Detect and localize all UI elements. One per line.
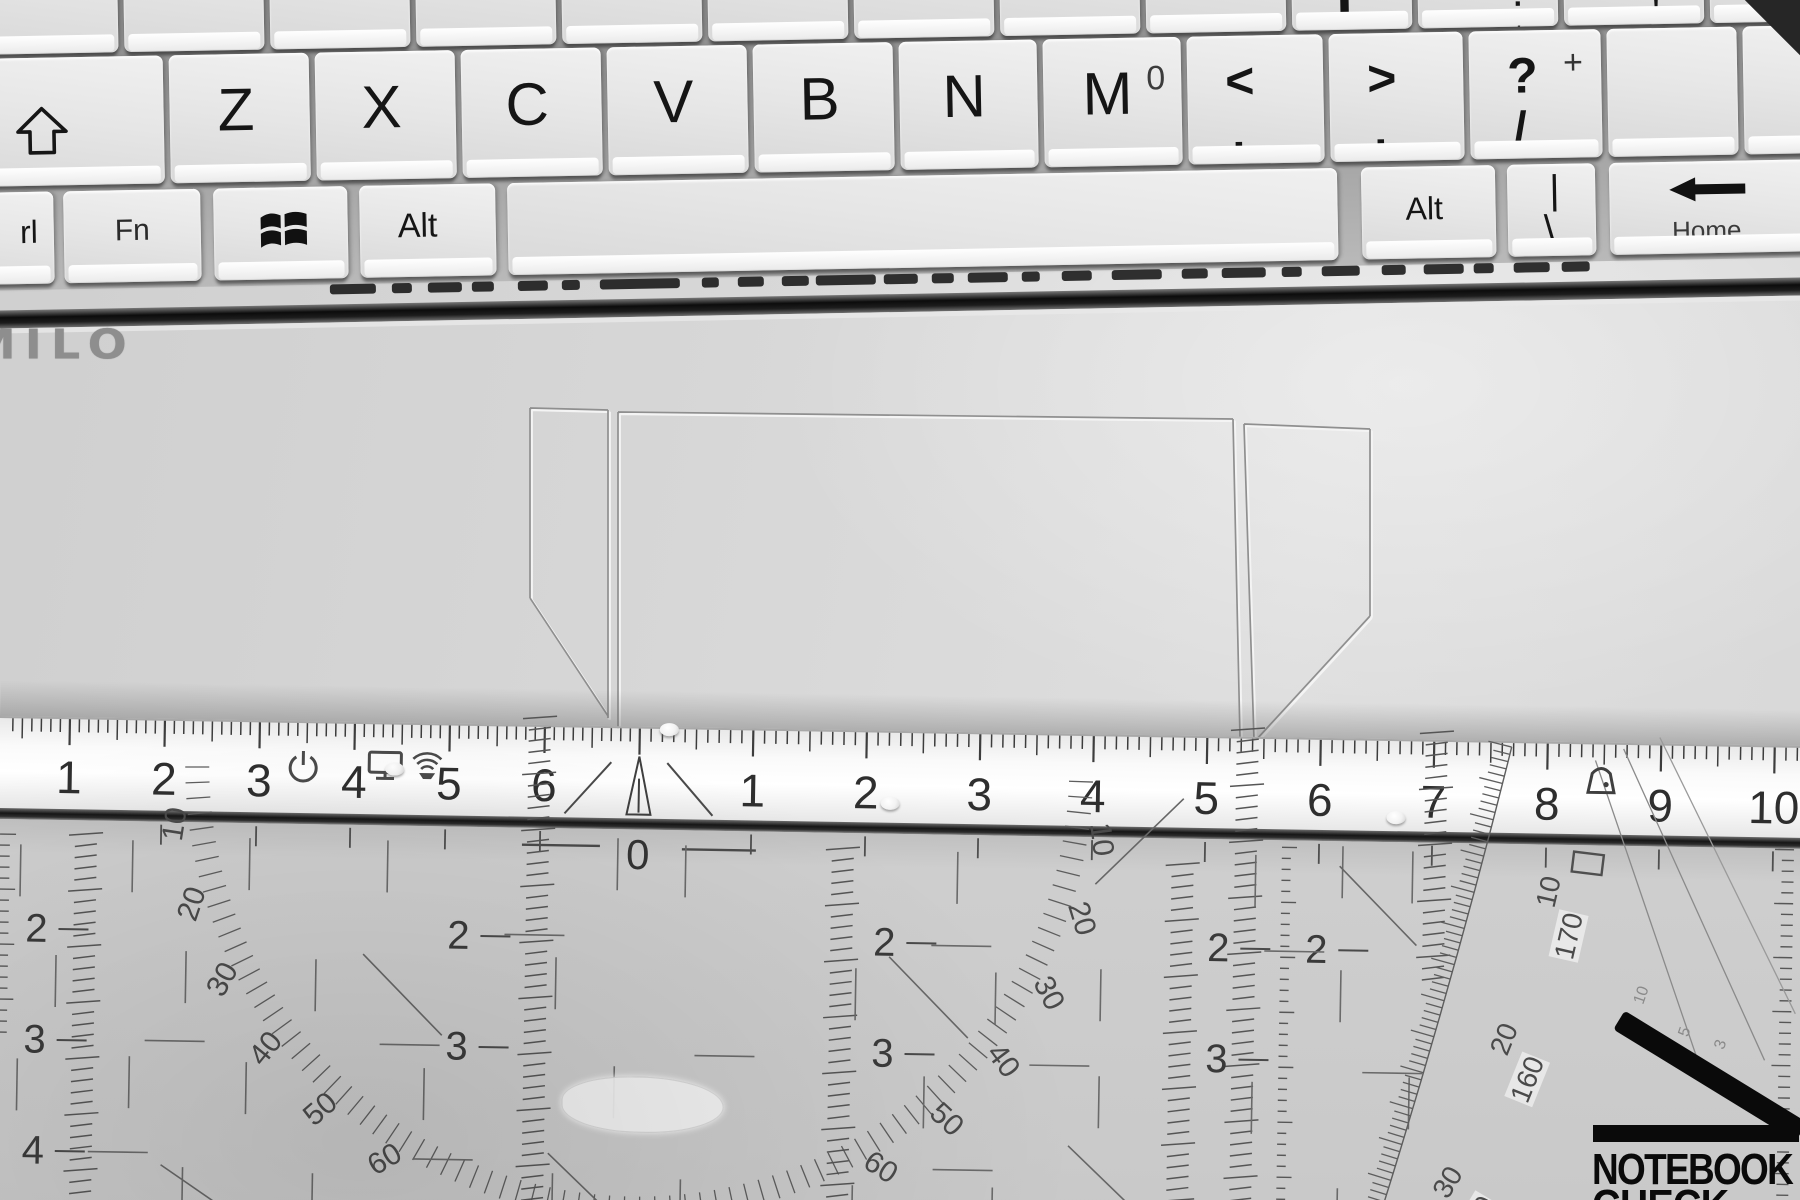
ladder-tick — [828, 1093, 850, 1096]
protractor-arc-tick — [1043, 913, 1066, 921]
ladder-tick — [524, 1029, 546, 1032]
ladder-tick — [75, 855, 97, 858]
grid-dash-vertical — [923, 1076, 924, 1128]
protractor-degree-west: 10 — [156, 805, 194, 843]
ladder-tick — [831, 880, 853, 883]
ladder-tick — [1224, 1175, 1258, 1179]
card-slot-icon — [1570, 850, 1608, 879]
ladder-tick — [1166, 862, 1200, 866]
ruler-number-left: 3 — [246, 754, 272, 806]
ladder-tick — [1167, 1154, 1189, 1157]
ladder-tick — [520, 884, 554, 888]
right-protractor-tick — [1469, 845, 1486, 849]
ladder-tick — [525, 985, 547, 988]
right-protractor-tick — [1411, 1054, 1427, 1059]
protractor-arc-tick — [360, 1105, 375, 1124]
ladder-tick — [522, 1141, 544, 1144]
ladder-tick — [527, 850, 549, 853]
grid-dash-horizontal — [1264, 951, 1324, 952]
protractor-arc-tick — [904, 1105, 919, 1124]
protractor-arc-tick — [292, 1043, 310, 1059]
right-protractor-tick — [1430, 989, 1447, 994]
ruler: 6543211234567891001020304050601020304050… — [0, 716, 1800, 1200]
ladder-tick — [524, 1007, 546, 1010]
right-protractor-tick — [1399, 1097, 1415, 1102]
right-protractor-tick — [1420, 1025, 1436, 1030]
ladder-tick — [1164, 974, 1198, 978]
ladder-tick — [1233, 963, 1255, 966]
ladder-tick — [525, 951, 547, 954]
watermark-horizontal-bar — [1593, 1125, 1799, 1142]
grid-dash-vertical — [16, 1058, 17, 1110]
ladder-tick — [1234, 884, 1256, 887]
protractor-degree-east: 20 — [1061, 898, 1102, 940]
ladder-tick — [1233, 940, 1255, 943]
right-protractor-tick — [1482, 794, 1499, 798]
protractor-arc-tick — [996, 1007, 1016, 1020]
ladder-tick — [516, 1164, 550, 1168]
ladder-tick — [70, 1157, 92, 1160]
protractor-arc-tick — [654, 1196, 656, 1200]
vertical-scale-number: 2 — [1305, 928, 1328, 972]
ladder-tick — [1235, 851, 1257, 854]
right-protractor-tick — [1465, 859, 1482, 863]
right-protractor-tick — [1460, 881, 1477, 885]
ladder-tick — [1229, 839, 1263, 843]
ruler-number-right: 10 — [1748, 781, 1800, 834]
protractor-degree-east: 50 — [923, 1096, 970, 1143]
grid-dash-vertical — [132, 840, 133, 892]
right-protractor-tick — [1392, 1118, 1408, 1123]
ladder-tick — [1237, 739, 1259, 742]
protractor-arc-tick — [772, 1175, 780, 1198]
ladder-tick — [70, 1135, 92, 1138]
protractor-degree-east: 60 — [858, 1145, 904, 1191]
ladder-tick — [73, 978, 95, 981]
ladder-tick — [1424, 831, 1446, 834]
ladder-tick — [1230, 783, 1264, 787]
ladder-tick — [827, 1138, 849, 1141]
ladder-tick — [528, 749, 550, 752]
ruler-molding-bump — [385, 762, 404, 775]
grid-dash-horizontal — [504, 934, 564, 935]
grid-diagonal — [1067, 1146, 1148, 1200]
ladder-tick — [1424, 854, 1446, 857]
ladder-tick — [830, 981, 852, 984]
protractor-degree-east: 10 — [1083, 821, 1120, 858]
grid-dash-vertical — [991, 1188, 992, 1200]
protractor-arc-tick — [949, 1065, 967, 1082]
right-protractor-tick — [1426, 1003, 1442, 1008]
ladder-tick — [1422, 977, 1444, 980]
right-protractor-tick — [1372, 1182, 1388, 1187]
ladder-tick — [826, 1194, 848, 1197]
protractor-arc-tick — [978, 1031, 997, 1046]
protractor-arc-tick — [938, 1076, 955, 1093]
grid-dash-vertical — [1412, 851, 1413, 903]
ladder-tick — [1235, 828, 1257, 831]
ladder-tick — [1170, 986, 1192, 989]
ladder-tick — [1417, 899, 1451, 903]
ladder-tick — [64, 1112, 98, 1116]
ladder-tick — [1236, 806, 1258, 809]
ladder-tick — [1233, 974, 1255, 977]
ladder-tick — [74, 922, 96, 925]
protractor-arc-tick — [199, 871, 222, 878]
ladder-tick — [1226, 1007, 1260, 1011]
ladder-tick — [521, 1175, 543, 1178]
protractor-arc-tick — [854, 1139, 867, 1160]
grid-dash-vertical — [855, 968, 856, 1020]
wifi-arc — [413, 753, 441, 759]
protractor-arc-tick — [1069, 781, 1093, 782]
right-protractor-tick — [1436, 967, 1453, 972]
ladder-tick — [529, 727, 551, 730]
grid-dash-vertical — [245, 1062, 246, 1114]
right-protractor-tick — [1470, 814, 1493, 820]
ladder-tick — [524, 1018, 546, 1021]
protractor-arc-tick — [399, 1131, 412, 1152]
protractor-arc-tick — [530, 1184, 536, 1200]
ruler-molding-bump — [881, 797, 900, 810]
ladder-tick — [1426, 753, 1448, 756]
ladder-tick — [1167, 1120, 1189, 1123]
protractor-arc-tick — [758, 1180, 765, 1200]
ruler-number-right: 4 — [1080, 770, 1106, 822]
ladder-tick — [829, 1037, 851, 1040]
protractor-arc-tick — [195, 856, 218, 862]
ladder-tick — [523, 716, 557, 720]
right-protractor-tick — [1488, 741, 1511, 747]
right-protractor-degree-inner: 170 — [1548, 910, 1589, 962]
protractor-arc-tick — [263, 1007, 283, 1021]
grid-dash-vertical — [851, 1185, 852, 1200]
ladder-tick — [527, 839, 549, 842]
protractor-arc-tick — [608, 1196, 610, 1200]
ladder-tick — [526, 917, 548, 920]
grid-dash-vertical — [680, 1179, 681, 1200]
protractor-arc-tick — [800, 1165, 810, 1187]
ladder-tick — [517, 1108, 551, 1112]
ladder-tick — [1225, 1063, 1259, 1067]
ladder-tick — [523, 1097, 545, 1100]
protractor-arc-tick — [225, 941, 247, 952]
ladder-tick — [830, 936, 852, 939]
right-protractor-tick — [1431, 958, 1454, 964]
vertical-scale-number: 2 — [873, 921, 896, 965]
protractor-arc-tick — [484, 1171, 492, 1194]
protractor-arc-tick — [254, 994, 274, 1007]
ladder-tick — [1237, 750, 1259, 753]
touchpad-right-button-highlight — [1246, 426, 1372, 742]
protractor-arc-tick — [413, 1139, 425, 1160]
right-protractor-tick — [1454, 902, 1471, 906]
touchpad-left-button-highlight — [532, 410, 610, 720]
ladder-tick — [1423, 910, 1445, 913]
ladder-tick — [1423, 876, 1445, 879]
ladder-tick — [523, 1074, 545, 1077]
ruler-number-right: 6 — [1307, 774, 1333, 826]
protractor-arc-tick — [455, 1159, 465, 1181]
protractor-arc-tick — [213, 914, 236, 923]
lock-dot — [1603, 782, 1608, 787]
grid-dash-vertical — [552, 1173, 553, 1200]
vertical-scale-number: 3 — [23, 1017, 46, 1061]
grid-dash-horizontal — [145, 1040, 205, 1041]
protractor-arc-tick — [1032, 941, 1054, 951]
ladder-tick — [524, 1041, 546, 1044]
ladder-tick — [1163, 1030, 1197, 1034]
grid-dash-vertical — [1255, 855, 1256, 907]
grid-dash-vertical — [685, 845, 686, 897]
right-protractor-tick — [1415, 1039, 1431, 1044]
ladder-tick — [1227, 951, 1261, 955]
ladder-tick — [829, 1048, 851, 1051]
protractor-arc-tick — [441, 1153, 452, 1175]
ladder-tick — [1170, 952, 1192, 955]
ladder-tick — [1424, 865, 1446, 868]
protractor-arc-tick — [814, 1159, 825, 1181]
right-protractor-tick — [1475, 823, 1492, 827]
ruler-number-right: 5 — [1193, 772, 1219, 824]
ladder-tick — [1170, 963, 1192, 966]
right-protractor-tick — [1471, 837, 1488, 841]
ladder-tick — [519, 940, 553, 944]
right-protractor-tick — [1409, 1061, 1425, 1066]
ladder-tick — [1235, 862, 1257, 865]
protractor-arc-tick — [1060, 856, 1084, 861]
ladder-tick — [522, 1153, 544, 1156]
photo-laptop-keyboard-with-ruler: L;'ZXCVBNM0<,>.?/+rlFnAltAlt|\Home MILO … — [0, 0, 1800, 1200]
grid-dash-horizontal — [380, 1044, 440, 1045]
grid-dash-vertical — [957, 852, 958, 904]
wifi-icon — [407, 745, 448, 786]
right-protractor-tick — [1432, 982, 1449, 987]
protractor-degree-west: 20 — [171, 883, 213, 925]
ladder-tick — [830, 948, 852, 951]
protractor-degree-east: 40 — [980, 1038, 1026, 1085]
card-slot-frame — [1572, 852, 1604, 875]
right-protractor-degree-outer: 20 — [1484, 1019, 1524, 1059]
protractor-degree-west: 60 — [362, 1137, 408, 1182]
ladder-tick — [521, 1186, 543, 1189]
vertical-scale-number: 2 — [447, 913, 470, 957]
ladder-tick — [1418, 843, 1452, 847]
ladder-tick — [822, 1071, 856, 1075]
ruler-number-left: 1 — [56, 751, 82, 803]
right-protractor-tick — [1405, 1075, 1421, 1080]
grid-diagonal — [547, 1153, 628, 1200]
ladder-tick — [831, 892, 853, 895]
protractor-arc-tick — [426, 1146, 437, 1168]
protractor-arc-tick — [185, 767, 209, 768]
protractor-arc-tick — [302, 1054, 320, 1071]
ladder-tick — [1423, 932, 1445, 935]
ladder-tick — [1230, 1164, 1252, 1167]
grid-dash-vertical — [55, 955, 56, 1007]
ladder-tick — [1231, 727, 1265, 731]
ladder-tick — [1232, 1041, 1254, 1044]
ruler-number-zero: 0 — [626, 831, 650, 878]
protractor-arc-tick — [218, 928, 240, 938]
ladder-tick — [525, 962, 547, 965]
ladder-tick — [1165, 918, 1199, 922]
ladder-tick — [830, 970, 852, 973]
right-protractor-tick — [1413, 1046, 1429, 1051]
grid-dash-horizontal — [1362, 1073, 1422, 1074]
right-protractor-degree-outer: 30 — [1426, 1161, 1469, 1200]
ladder-tick — [1425, 764, 1447, 767]
right-protractor-tick — [1422, 1018, 1438, 1023]
zero-diagonal-right — [666, 763, 713, 816]
ladder-tick — [832, 869, 854, 872]
protractor-degree-west: 50 — [297, 1086, 344, 1133]
protractor-arc-tick — [208, 899, 231, 907]
ladder-tick — [1168, 1075, 1190, 1078]
ladder-tick — [71, 1101, 93, 1104]
zero-diagonal-left — [564, 761, 611, 814]
right-protractor-tick — [1484, 787, 1501, 791]
vertical-scale-number: 3 — [871, 1031, 894, 1075]
ladder-tick — [1169, 1019, 1191, 1022]
ladder-tick — [517, 1052, 551, 1056]
protractor-arc-tick — [246, 982, 267, 995]
ladder-tick — [825, 903, 859, 907]
right-protractor-tick — [1370, 1190, 1386, 1195]
ladder-tick — [72, 1023, 94, 1026]
ruler-number-right: 2 — [853, 766, 879, 818]
grid-dash-vertical — [1340, 970, 1341, 1022]
ladder-tick — [63, 1168, 97, 1172]
ladder-tick — [823, 1015, 857, 1019]
ruler-number-right: 1 — [739, 764, 765, 816]
ladder-tick — [1234, 907, 1256, 910]
ladder-tick — [71, 1090, 93, 1093]
ladder-tick — [1168, 1064, 1190, 1067]
right-protractor-tick — [1400, 1066, 1423, 1073]
ladder-tick — [826, 847, 860, 851]
touchpad-left-button — [530, 408, 608, 718]
vertical-scale-number: 2 — [25, 906, 48, 950]
right-protractor-tick — [1452, 910, 1469, 914]
protractor-arc-tick — [186, 797, 210, 799]
ladder-tick — [72, 989, 94, 992]
ladder-tick — [820, 1183, 854, 1187]
ladder-tick — [821, 1127, 855, 1131]
ladder-tick — [1224, 1119, 1258, 1123]
ladder-tick — [67, 944, 101, 948]
protractor-degree-west: 30 — [200, 957, 245, 1002]
right-protractor-tick — [1421, 994, 1444, 1001]
grid-diagonal — [888, 957, 969, 1038]
protractor-arc-tick — [959, 1054, 977, 1070]
grid-dash-vertical — [20, 844, 21, 896]
ladder-tick — [72, 1034, 94, 1037]
grid-dash-vertical — [555, 957, 556, 1009]
grid-diagonal — [1338, 866, 1417, 945]
grid-dash-horizontal — [694, 1056, 754, 1057]
right-protractor-tick — [1451, 886, 1474, 892]
ladder-tick — [832, 858, 854, 861]
protractor-arc-tick — [1053, 885, 1076, 892]
right-protractor-tick — [1479, 808, 1496, 812]
right-protractor-tick — [1460, 850, 1483, 856]
grid-dash-vertical — [1342, 846, 1343, 898]
ladder-tick — [521, 828, 555, 832]
ruler-molding-bump — [1386, 811, 1405, 824]
protractor-degree-west: 40 — [242, 1025, 289, 1072]
ruler-number-right: 8 — [1534, 777, 1560, 829]
ladder-tick — [522, 1130, 544, 1133]
ladder-tick — [518, 996, 552, 1000]
angle-guide-line — [1655, 738, 1800, 1014]
right-protractor-tick — [1383, 1147, 1399, 1152]
ladder-tick — [525, 929, 547, 932]
ladder-tick — [1423, 887, 1445, 890]
ladder-tick — [1228, 895, 1262, 899]
vertical-scale-number: 2 — [1207, 926, 1230, 970]
wifi-arc — [421, 766, 433, 769]
right-protractor-tick — [1411, 1030, 1434, 1037]
grid-dash-vertical — [312, 1173, 313, 1200]
ladder-tick — [68, 888, 102, 892]
zero-pointer-arrow — [626, 756, 651, 814]
ladder-tick — [1230, 1153, 1252, 1156]
ruler-molding-bump — [660, 723, 679, 736]
ladder-tick — [523, 1063, 545, 1066]
ladder-tick — [1171, 896, 1193, 899]
grid-dash-vertical — [1251, 1082, 1252, 1134]
ladder-tick — [829, 1004, 851, 1007]
grid-dash-horizontal — [88, 1152, 148, 1153]
right-protractor-tick — [1424, 1010, 1440, 1015]
ladder-tick — [527, 817, 549, 820]
grid-dash-vertical — [129, 1056, 130, 1108]
protractor-arc-tick — [272, 1019, 291, 1034]
ladder-tick — [73, 967, 95, 970]
protractor-degree-east: 30 — [1026, 971, 1071, 1016]
ladder-tick — [1232, 1052, 1254, 1055]
grid-dash-vertical — [1100, 969, 1101, 1021]
right-protractor-tick — [1442, 946, 1459, 951]
ladder-tick — [1169, 1053, 1191, 1056]
ladder-tick — [526, 906, 548, 909]
protractor-arc-tick — [190, 826, 214, 830]
ladder-tick — [827, 1149, 849, 1152]
ladder-tick — [1232, 996, 1254, 999]
ladder-tick — [1168, 1098, 1190, 1101]
protractor-arc-tick — [545, 1187, 550, 1200]
vertical-scale-number: 3 — [1205, 1037, 1228, 1081]
ladder-tick — [1231, 1108, 1253, 1111]
protractor-arc-tick — [639, 1197, 640, 1200]
ladder-tick — [1236, 772, 1258, 775]
grid-diagonal — [160, 1165, 236, 1200]
ladder-tick — [1230, 1131, 1252, 1134]
ladder-tick — [71, 1079, 93, 1082]
ladder-tick — [824, 959, 858, 963]
ruler-number-right: 3 — [966, 768, 992, 820]
right-protractor-tick — [1388, 1132, 1404, 1137]
protractor-arc-tick — [231, 955, 253, 966]
ladder-tick — [69, 1191, 91, 1194]
ladder-tick — [1167, 1131, 1189, 1134]
ladder-tick — [1422, 943, 1444, 946]
ladder-tick — [1171, 885, 1193, 888]
grid-dash-horizontal — [413, 1159, 473, 1160]
protractor-arc-tick — [714, 1190, 719, 1200]
ladder-tick — [525, 973, 547, 976]
